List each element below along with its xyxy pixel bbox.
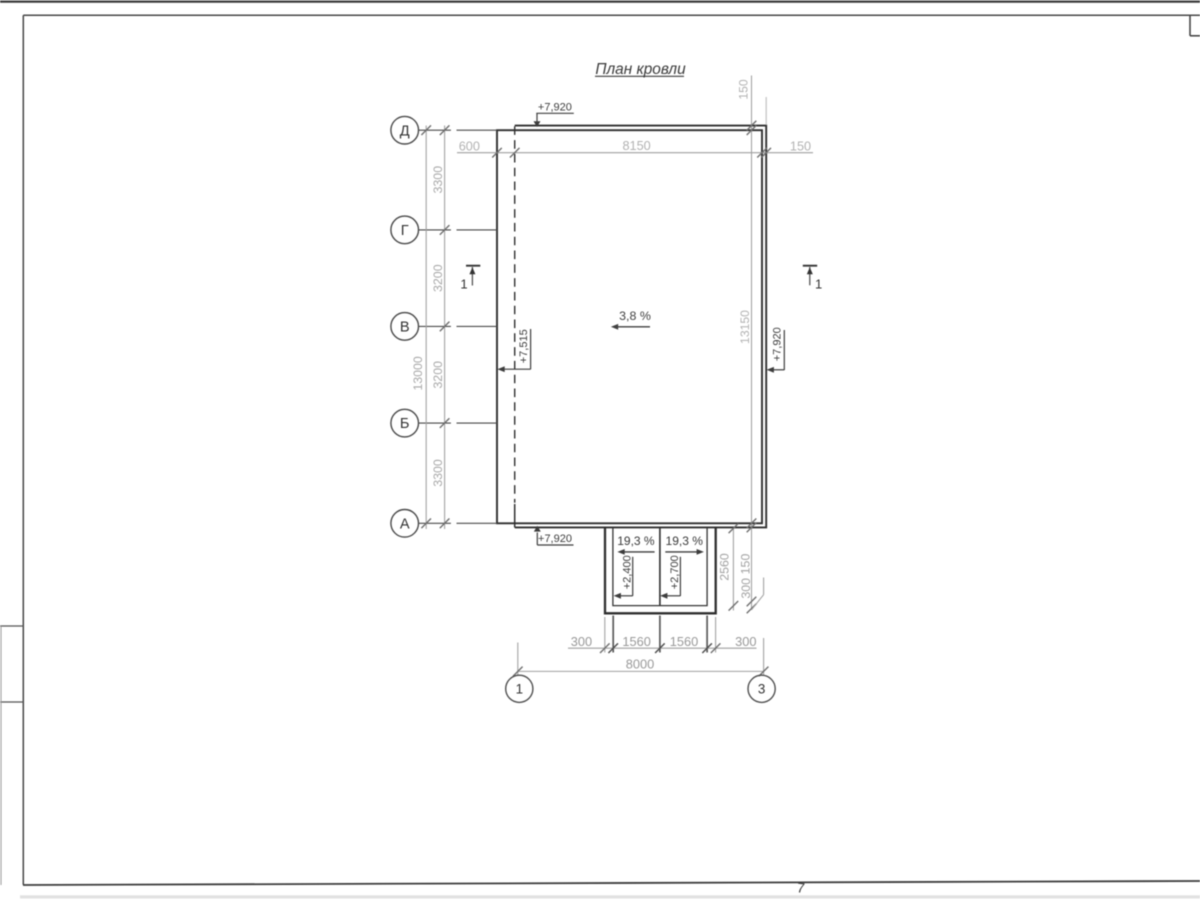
svg-text:13000: 13000	[411, 356, 425, 391]
svg-text:600: 600	[459, 139, 480, 153]
svg-text:3300: 3300	[431, 166, 445, 194]
svg-text:Д: Д	[400, 123, 410, 139]
svg-text:3: 3	[758, 682, 765, 697]
svg-text:3200: 3200	[431, 361, 445, 389]
svg-text:+7,920: +7,920	[771, 327, 783, 361]
svg-text:2560: 2560	[718, 553, 732, 581]
svg-text:1: 1	[460, 276, 467, 291]
svg-text:А: А	[400, 516, 410, 532]
svg-text:План кровли: План кровли	[595, 61, 686, 78]
svg-text:Г: Г	[401, 223, 409, 239]
svg-text:Б: Б	[400, 416, 410, 432]
svg-text:300: 300	[739, 578, 753, 599]
svg-text:В: В	[400, 320, 410, 336]
svg-text:3,8 %: 3,8 %	[619, 309, 651, 323]
svg-text:1560: 1560	[622, 634, 650, 649]
svg-text:8000: 8000	[626, 657, 654, 672]
svg-text:1: 1	[815, 276, 822, 291]
svg-text:+2,400: +2,400	[621, 555, 633, 589]
svg-text:150: 150	[790, 139, 811, 153]
svg-text:+2,700: +2,700	[669, 555, 681, 589]
svg-text:150: 150	[739, 554, 753, 575]
svg-text:3200: 3200	[431, 264, 445, 292]
svg-text:13150: 13150	[738, 310, 752, 344]
svg-text:1: 1	[516, 682, 523, 697]
svg-text:300: 300	[735, 634, 756, 649]
svg-text:+7,920: +7,920	[538, 533, 572, 545]
svg-text:19,3 %: 19,3 %	[617, 534, 655, 548]
svg-text:19,3 %: 19,3 %	[666, 534, 704, 548]
svg-text:150: 150	[736, 79, 750, 100]
svg-text:8150: 8150	[622, 139, 650, 153]
svg-text:300: 300	[571, 634, 592, 649]
svg-text:3300: 3300	[431, 459, 445, 487]
svg-text:+7,920: +7,920	[538, 102, 572, 114]
svg-text:1560: 1560	[670, 634, 698, 649]
svg-text:+7,515: +7,515	[518, 329, 530, 363]
